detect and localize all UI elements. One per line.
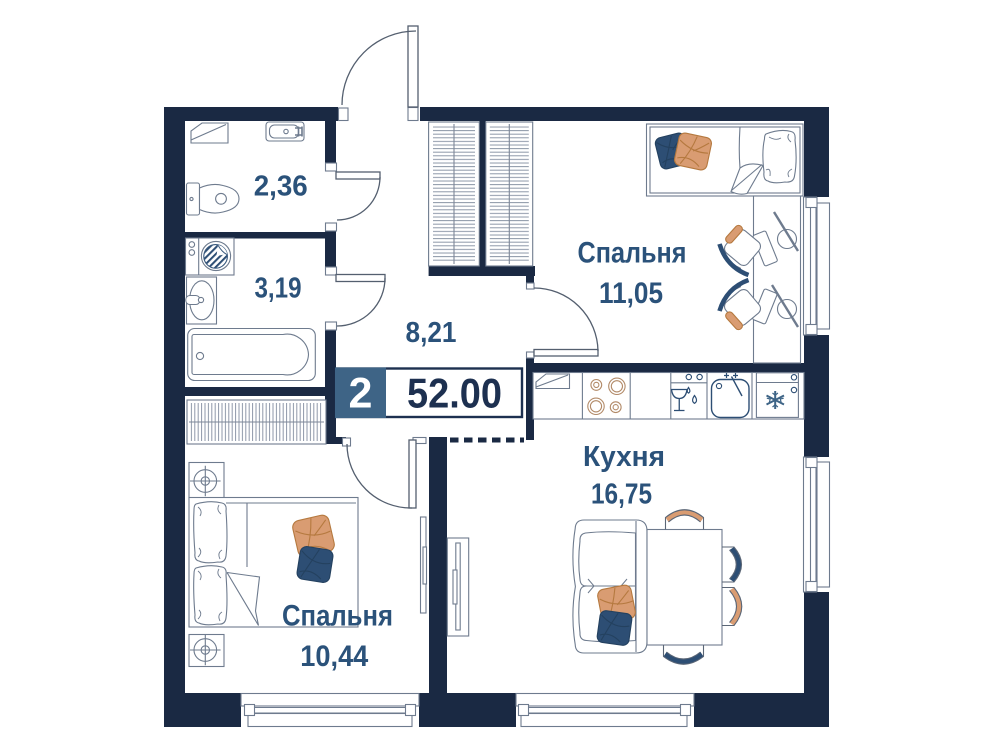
svg-text:Спальня: Спальня xyxy=(282,600,393,633)
svg-text:Спальня: Спальня xyxy=(578,237,687,270)
svg-text:16,75: 16,75 xyxy=(591,479,652,511)
svg-text:2: 2 xyxy=(349,370,373,418)
svg-text:52.00: 52.00 xyxy=(407,370,502,417)
svg-text:2,36: 2,36 xyxy=(254,171,308,203)
svg-text:11,05: 11,05 xyxy=(599,277,663,310)
svg-text:10,44: 10,44 xyxy=(300,640,368,673)
svg-text:3,19: 3,19 xyxy=(255,273,302,305)
svg-text:8,21: 8,21 xyxy=(406,317,457,349)
svg-text:Кухня: Кухня xyxy=(583,441,665,473)
